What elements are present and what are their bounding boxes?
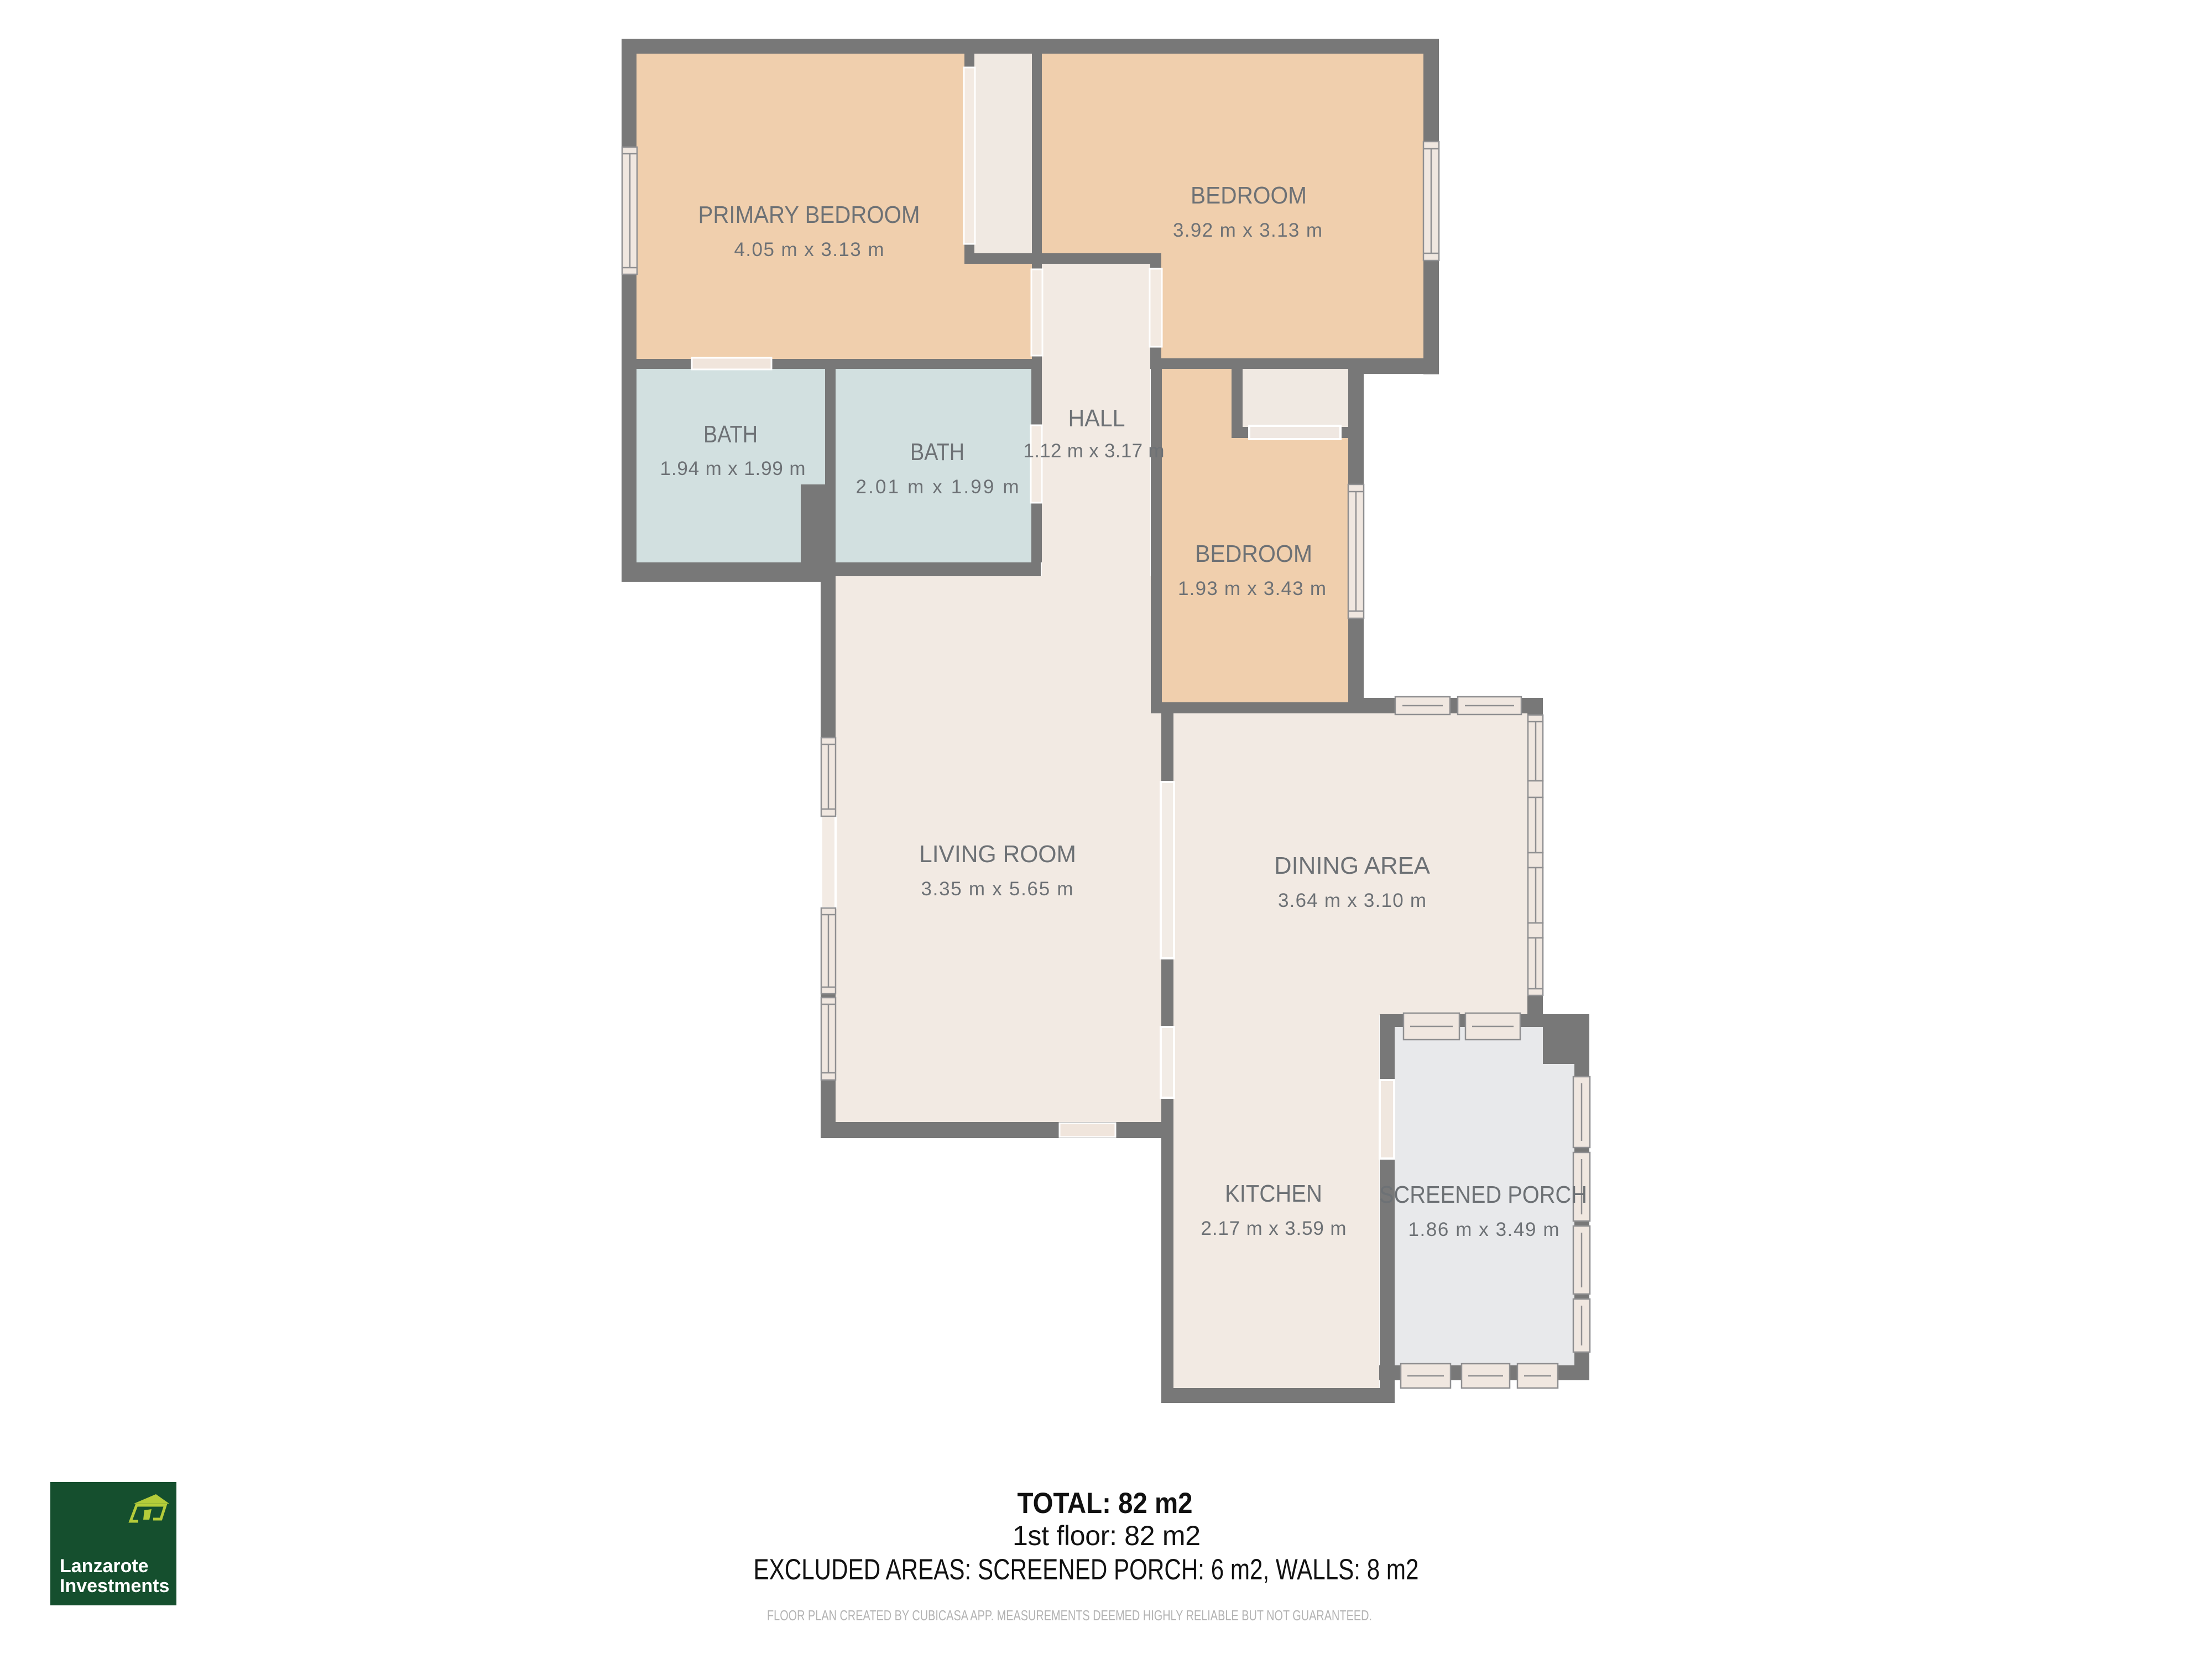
svg-text:DINING AREA: DINING AREA: [1274, 852, 1431, 879]
svg-text:FLOOR PLAN CREATED BY CUBICASA: FLOOR PLAN CREATED BY CUBICASA APP. MEAS…: [767, 1607, 1372, 1624]
svg-text:3.92 m x 3.13 m: 3.92 m x 3.13 m: [1173, 220, 1322, 241]
svg-text:BEDROOM: BEDROOM: [1191, 182, 1307, 209]
svg-text:TOTAL: 82 m2: TOTAL: 82 m2: [1018, 1487, 1193, 1520]
svg-text:1.94 m x 1.99 m: 1.94 m x 1.99 m: [660, 458, 806, 479]
svg-text:SCREENED PORCH: SCREENED PORCH: [1379, 1181, 1587, 1208]
svg-text:Investments: Investments: [60, 1575, 169, 1597]
svg-text:BATH: BATH: [910, 439, 964, 466]
svg-text:3.64 m x 3.10 m: 3.64 m x 3.10 m: [1278, 890, 1426, 911]
svg-text:3.35 m x 5.65 m: 3.35 m x 5.65 m: [921, 878, 1073, 900]
svg-text:1.86 m x 3.49 m: 1.86 m x 3.49 m: [1408, 1219, 1559, 1240]
svg-text:1st floor: 82 m2: 1st floor: 82 m2: [1013, 1520, 1201, 1551]
svg-text:1.12 m x 3.17 m: 1.12 m x 3.17 m: [1024, 440, 1165, 462]
svg-text:HALL: HALL: [1068, 405, 1125, 432]
svg-text:1.93 m x 3.43 m: 1.93 m x 3.43 m: [1178, 578, 1326, 599]
svg-text:BATH: BATH: [703, 421, 758, 448]
svg-text:LIVING ROOM: LIVING ROOM: [919, 841, 1076, 868]
svg-text:4.05 m x 3.13 m: 4.05 m x 3.13 m: [734, 239, 884, 260]
svg-text:KITCHEN: KITCHEN: [1225, 1180, 1322, 1207]
svg-text:PRIMARY BEDROOM: PRIMARY BEDROOM: [698, 201, 920, 228]
svg-text:2.17 m x 3.59 m: 2.17 m x 3.59 m: [1201, 1218, 1347, 1239]
svg-text:EXCLUDED AREAS: SCREENED PORCH: EXCLUDED AREAS: SCREENED PORCH: 6 m2, WA…: [754, 1553, 1419, 1586]
svg-text:BEDROOM: BEDROOM: [1195, 540, 1312, 567]
svg-text:Lanzarote: Lanzarote: [60, 1556, 149, 1577]
